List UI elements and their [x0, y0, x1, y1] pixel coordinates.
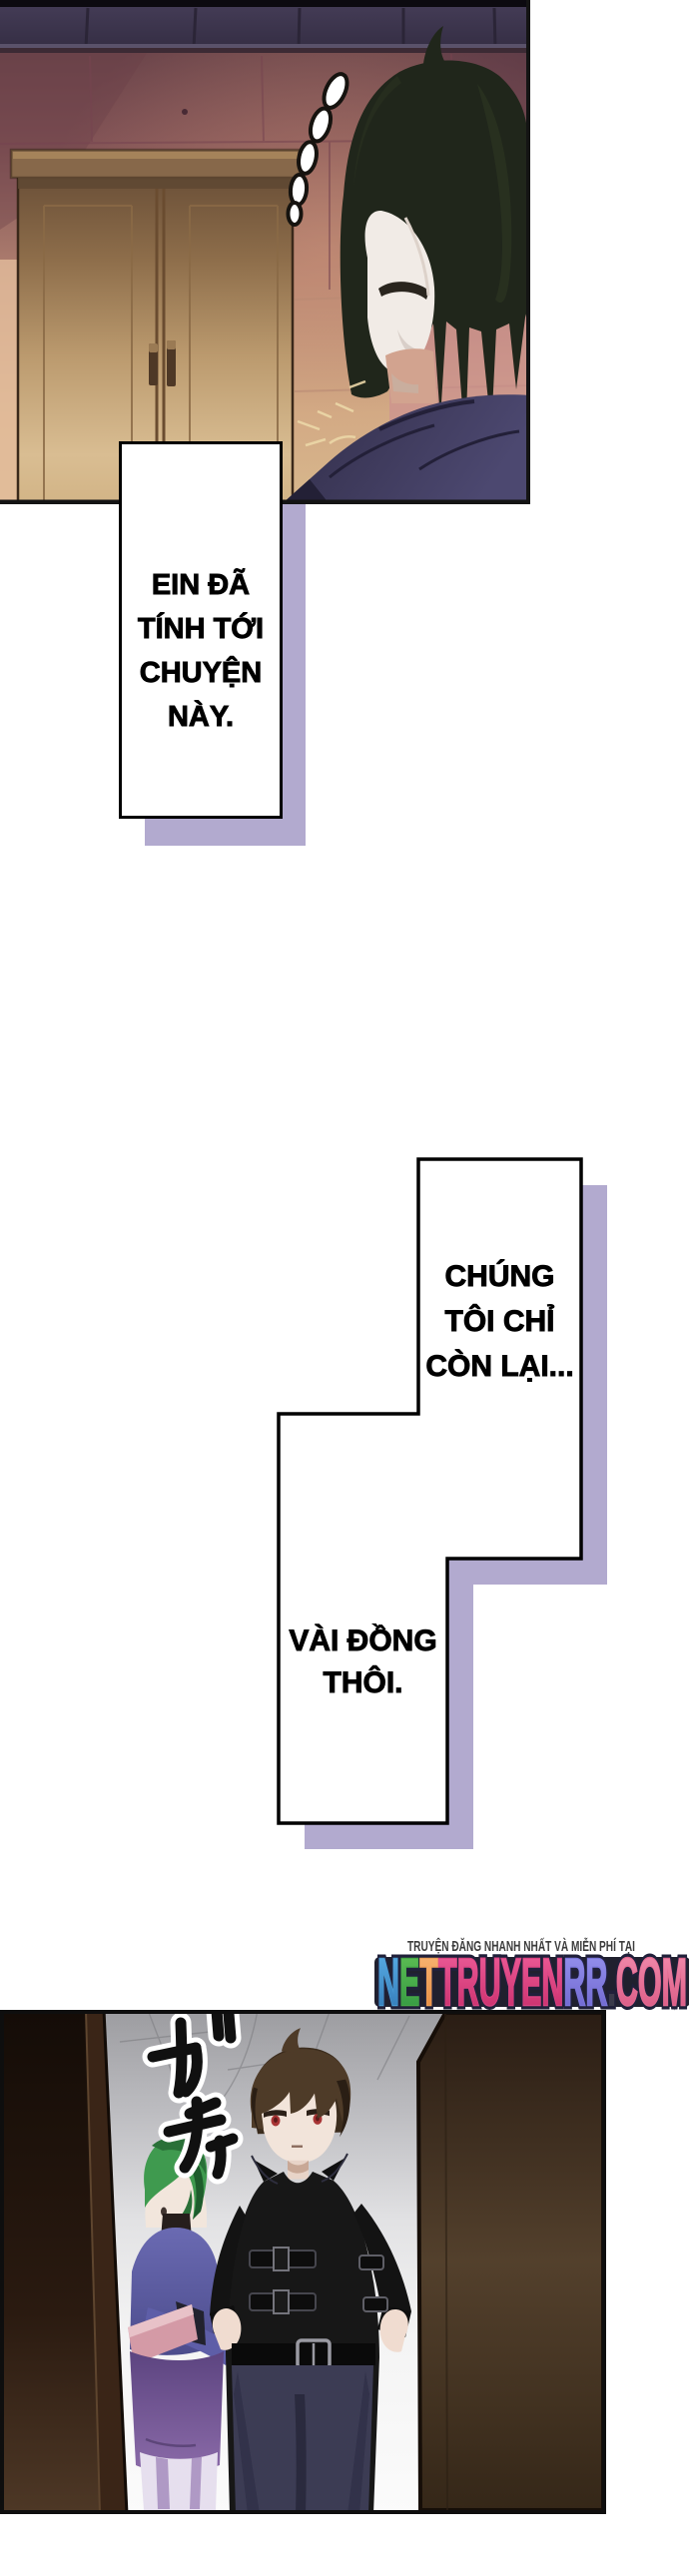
svg-text:NETTRUYENRR.COM: NETTRUYENRR.COM	[377, 1945, 687, 2017]
